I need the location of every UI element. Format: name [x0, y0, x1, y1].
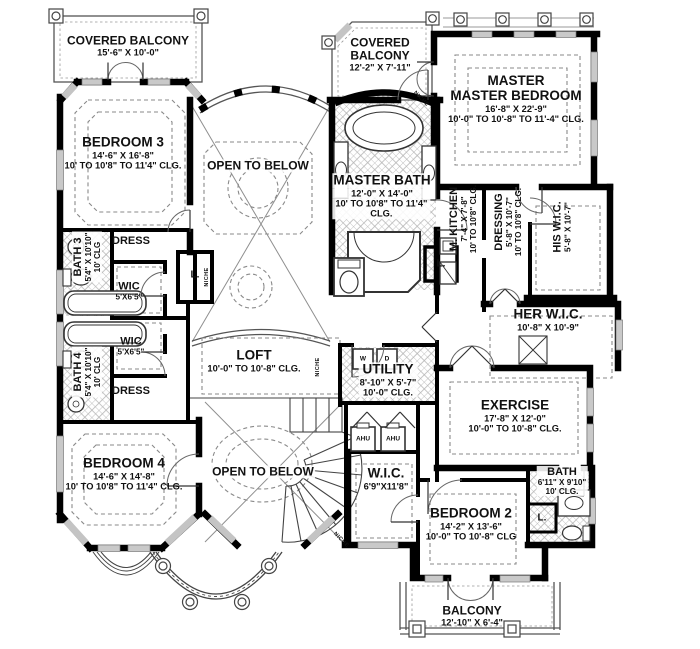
room-dims: 12'-0" X 14'-0": [332, 188, 431, 198]
niche-label-loft: NICHE: [315, 357, 321, 376]
room-dims: 5'-8" X 10'-7": [505, 188, 514, 256]
room-name: HER W.I.C.: [513, 307, 582, 322]
room-ceiling: 10'-0" TO 10'-8" CLG.: [207, 363, 300, 373]
washer-label: W: [360, 355, 366, 362]
room-dims: 6'11" X 9'10": [537, 478, 588, 487]
room-name: BALCONY: [441, 604, 503, 617]
room-label-dress-bottom: DRESS: [112, 385, 150, 397]
linen-closet-label-1: L.: [191, 270, 200, 281]
room-dims: 16'-8" X 22'-9": [448, 104, 584, 114]
dryer-label: D: [385, 355, 390, 362]
room-ceiling: 10' TO 10'8" TO 11'4" CLG.: [65, 160, 182, 170]
room-label-open-to-below-top: OPEN TO BELOW: [206, 159, 310, 172]
room-name: BATH 4: [72, 347, 84, 398]
room-name: WIC: [118, 335, 145, 347]
room-name: BATH 3: [72, 232, 84, 283]
room-name: BATH: [537, 466, 588, 478]
room-ceiling: 10' TO 10'8" CLG.: [514, 188, 523, 256]
linen-text: L.: [191, 270, 200, 281]
room-dims: 14'-6" X 16'-8": [65, 150, 182, 160]
room-name: EXERCISE: [468, 398, 561, 413]
room-label-master-bedroom: MASTER MASTER BEDROOM 16'-8" X 22'-9" 10…: [448, 74, 584, 124]
room-name: BEDROOM 2: [426, 506, 517, 521]
floorplan-drawing: [0, 0, 700, 649]
room-name-line2: BALCONY: [349, 50, 410, 63]
linen-closet-label-3: L.: [538, 513, 547, 524]
room-label-dress-top: DRESS: [112, 235, 150, 247]
room-name: OPEN TO BELOW: [206, 159, 310, 172]
niche-text: NICHE: [315, 357, 321, 376]
room-label-bedroom4: BEDROOM 4 14'-6" X 14'-8" 10' TO 10'8" T…: [66, 456, 183, 491]
ahu-unit-label-1: AHU: [356, 435, 370, 442]
room-ceiling: 10' CLG: [93, 232, 102, 283]
ahu-text: AHU: [386, 435, 400, 442]
room-ceiling: 10' TO 10'8" CLG.: [469, 185, 478, 253]
room-ceiling: 10'-0" TO 10'-8" CLG: [426, 531, 517, 541]
washer-text: W: [360, 355, 366, 362]
room-dims: 5'X6'5": [118, 348, 145, 357]
room-name: WIC: [116, 280, 143, 292]
room-label-covered-balcony-mid: COVERED BALCONY 12'-2" X 7'-11": [349, 37, 410, 74]
floor-plan: COVERED BALCONY 15'-6" X 10'-0" BEDROOM …: [0, 0, 700, 649]
room-name: COVERED BALCONY: [67, 34, 189, 47]
room-name: UTILITY: [359, 362, 418, 377]
room-ceiling: 10' TO 10'8" TO 11'4" CLG.: [332, 198, 430, 218]
ahu-text: AHU: [356, 435, 370, 442]
room-label-bedroom2: BEDROOM 2 14'-2" X 13'-6" 10'-0" TO 10'-…: [426, 506, 517, 541]
room-name: M. KITCHEN: [448, 185, 460, 253]
room-label-wic-top: WIC 5'X6'5": [116, 280, 143, 301]
linen-closet-label-2: L.: [437, 259, 446, 270]
room-name: DRESS: [112, 385, 150, 397]
room-ceiling: 10'-0" CLG.: [359, 387, 418, 397]
room-label-m-kitchen: M. KITCHEN 7'-4" X 7'-8" 10' TO 10'8" CL…: [448, 185, 478, 253]
room-label-wic-bottom: WIC 5'X6'5": [118, 335, 145, 356]
room-label-loft: LOFT 10'-0" TO 10'-8" CLG.: [207, 348, 300, 373]
room-dims: 5'-8" X 10'-7": [564, 201, 573, 252]
room-label-her-wic: HER W.I.C. 10'-8" X 10'-9": [513, 307, 582, 332]
room-name: DRESSING: [493, 188, 505, 256]
room-dims: 5'X6'5": [116, 293, 143, 302]
room-ceiling: 10'-0" TO 10'-8" CLG.: [468, 423, 561, 433]
room-dims: 14'-6" X 14'-8": [66, 471, 183, 481]
room-label-bath3: BATH 3 5'4" X 10'10" 10' CLG: [72, 232, 102, 283]
room-label-bath2: BATH 6'11" X 9'10" 10' CLG.: [537, 466, 588, 496]
linen-text: L.: [538, 513, 547, 524]
room-label-exercise: EXERCISE 17'-8" X 12'-0" 10'-0" TO 10'-8…: [468, 398, 561, 433]
room-dims: 8'-10" X 5'-7": [359, 377, 418, 387]
room-name: BEDROOM 4: [66, 456, 183, 471]
room-name: BEDROOM 3: [65, 135, 182, 150]
room-name-line2: MASTER BEDROOM: [448, 89, 584, 104]
room-dims: 17'-8" X 12'-0": [468, 413, 561, 423]
linen-text: L.: [437, 259, 446, 270]
room-ceiling: 10' TO 10'8" TO 11'4" CLG.: [66, 481, 183, 491]
room-ceiling: 10' CLG.: [537, 487, 588, 496]
room-dims: 12'-2" X 7'-11": [349, 63, 410, 73]
room-dims: 7'-4" X 7'-8": [460, 185, 469, 253]
room-name: MASTER BATH: [332, 173, 431, 188]
room-ceiling: 10' CLG: [93, 347, 102, 398]
curved-balcony: [93, 552, 282, 599]
room-dims: 5'4" X 10'10": [84, 232, 93, 283]
room-label-utility: UTILITY 8'-10" X 5'-7" 10'-0" CLG.: [359, 362, 418, 397]
room-label-his-wic: HIS W.I.C. 5'-8" X 10'-7": [551, 201, 572, 252]
room-ceiling: 10'-0" TO 10'-8" TO 11'-4" CLG.: [448, 114, 584, 124]
niche-label-hall: NICHE: [204, 267, 210, 286]
room-label-covered-balcony-left: COVERED BALCONY 15'-6" X 10'-0": [67, 34, 189, 57]
niche-text: NICHE: [204, 267, 210, 286]
room-name: LOFT: [207, 348, 300, 363]
ahu-unit-label-2: AHU: [386, 435, 400, 442]
room-name-line1: MASTER: [448, 74, 584, 89]
room-dims: 6'9"X11'8": [364, 481, 409, 491]
room-name: DRESS: [112, 235, 150, 247]
dryer-text: D: [385, 355, 390, 362]
room-label-dressing: DRESSING 5'-8" X 10'-7" 10' TO 10'8" CLG…: [493, 188, 523, 256]
room-dims: 14'-2" X 13'-6": [426, 521, 517, 531]
room-name: HIS W.I.C.: [551, 201, 563, 252]
room-label-balcony: BALCONY 12'-10" X 6'-4": [441, 604, 503, 627]
room-label-open-to-below-bottom: OPEN TO BELOW: [211, 465, 315, 478]
room-name: W.I.C.: [364, 466, 409, 481]
room-dims: 15'-6" X 10'-0": [67, 47, 189, 57]
room-label-bath4: BATH 4 5'4" X 10'10" 10' CLG: [72, 347, 102, 398]
room-label-wic-bedroom2: W.I.C. 6'9"X11'8": [364, 466, 409, 491]
room-name: OPEN TO BELOW: [211, 465, 315, 478]
room-label-master-bath: MASTER BATH 12'-0" X 14'-0" 10' TO 10'8"…: [332, 173, 431, 219]
open-area-decor: [204, 142, 312, 502]
room-dims: 5'4" X 10'10": [84, 347, 93, 398]
room-dims: 12'-10" X 6'-4": [441, 617, 503, 627]
room-label-bedroom3: BEDROOM 3 14'-6" X 16'-8" 10' TO 10'8" T…: [65, 135, 182, 170]
room-dims: 10'-8" X 10'-9": [513, 322, 582, 332]
